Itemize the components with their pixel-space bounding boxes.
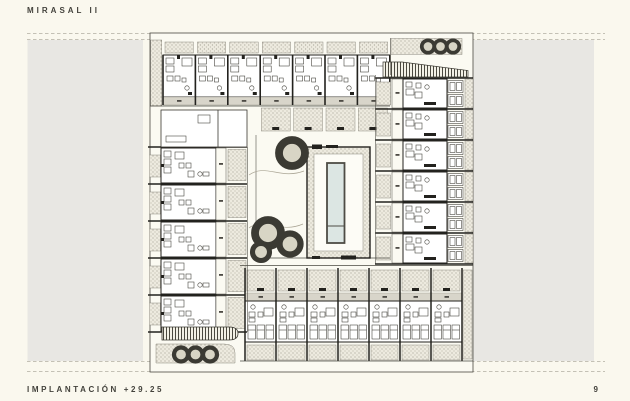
housing-unit: [325, 42, 357, 105]
housing-unit: [369, 268, 400, 361]
housing-unit: [245, 268, 276, 361]
ramp-bottom-left: [162, 327, 238, 340]
garden-gate: [305, 127, 312, 130]
housing-unit: [293, 42, 325, 105]
tree-icon: [203, 348, 217, 362]
housing-unit: [228, 42, 260, 105]
housing-unit: [431, 268, 462, 361]
street-left: [28, 40, 144, 361]
portfolio-page: MIRASAL II: [0, 0, 630, 401]
housing-unit: [307, 268, 338, 361]
site-plan-drawing: [0, 0, 630, 401]
housing-unit: [148, 184, 247, 220]
drawing-caption: IMPLANTACIÓN +29.25: [27, 385, 164, 394]
housing-unit: [163, 42, 195, 105]
housing-unit: [148, 221, 247, 257]
planting-strip: [151, 40, 162, 106]
housing-unit: [276, 268, 307, 361]
top-right-garden: [391, 39, 462, 55]
tree-icon: [422, 40, 434, 52]
tree-icon: [253, 244, 270, 261]
housing-unit: [338, 268, 369, 361]
bottom-left-trees: [174, 348, 217, 362]
left-column-units: [148, 147, 247, 331]
page-number: 9: [594, 385, 598, 394]
street-right: [474, 40, 595, 361]
housing-unit: [195, 42, 227, 105]
tree-icon: [174, 348, 188, 362]
pool: [327, 163, 345, 243]
housing-unit: [260, 42, 292, 105]
tree-icon: [434, 40, 446, 52]
pool-building: [307, 145, 370, 260]
common-rooms: [161, 110, 247, 147]
housing-unit: [148, 295, 247, 331]
garden-gate: [337, 127, 344, 130]
planting-strip: [463, 270, 472, 359]
tree-icon: [279, 140, 305, 166]
tree-icon: [189, 348, 203, 362]
tree-icon: [447, 40, 459, 52]
housing-unit: [400, 268, 431, 361]
tree-icon: [280, 234, 301, 255]
housing-unit: [148, 147, 247, 183]
garden-gate: [272, 127, 279, 130]
housing-unit: [148, 258, 247, 294]
